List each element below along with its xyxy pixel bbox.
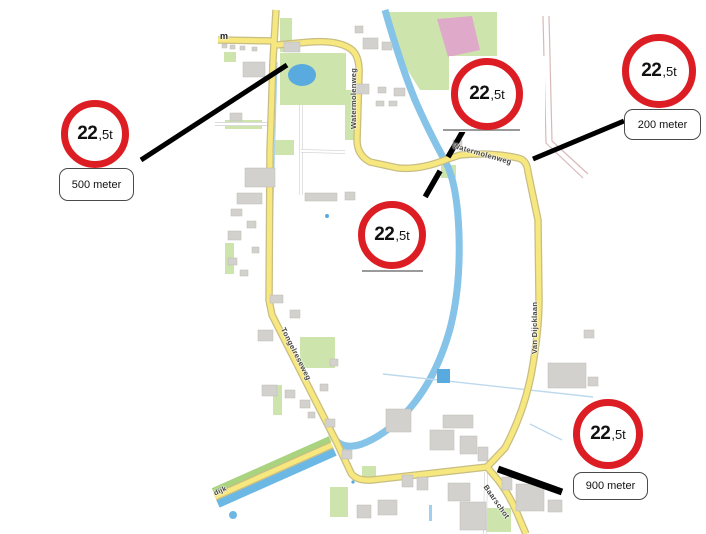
sign-weight-value: 22 (374, 224, 394, 246)
weight-limit-sign-bottom: 22,5t (573, 399, 643, 469)
weight-limit-sign-top-middle: 22,5t (451, 58, 523, 130)
distance-note-200: 200 meter (624, 109, 701, 140)
weight-limit-sign-right: 22,5t (622, 34, 696, 108)
sign-weight-suffix: ,5t (490, 87, 504, 102)
annotated-map: 22,5t 22,5t 22,5t 22,5t 22,5t 500 meter … (0, 0, 706, 534)
road-label-m-partial: m (220, 31, 228, 41)
sign-weight-suffix: ,5t (98, 127, 112, 142)
distance-note-500: 500 meter (59, 168, 134, 201)
road-label-watermolenweg-vertical: Watermolenweg (349, 52, 361, 144)
sign-weight-value: 22 (590, 423, 610, 445)
sign-weight-suffix: ,5t (611, 427, 625, 442)
weight-limit-sign-left: 22,5t (61, 100, 129, 168)
distance-note-text: 900 meter (586, 480, 636, 492)
sign-underline (362, 270, 423, 272)
sign-weight-value: 22 (77, 123, 97, 145)
distance-note-text: 500 meter (72, 179, 122, 191)
distance-note-900: 900 meter (573, 472, 648, 500)
weight-limit-sign-middle: 22,5t (358, 201, 426, 269)
sign-weight-suffix: ,5t (662, 64, 676, 79)
road-label-van-dijcklaan: Van Dijcklaan (530, 296, 542, 360)
sign-weight-value: 22 (469, 83, 489, 105)
sign-weight-value: 22 (641, 60, 661, 82)
sign-weight-suffix: ,5t (395, 228, 409, 243)
distance-note-text: 200 meter (638, 119, 688, 131)
